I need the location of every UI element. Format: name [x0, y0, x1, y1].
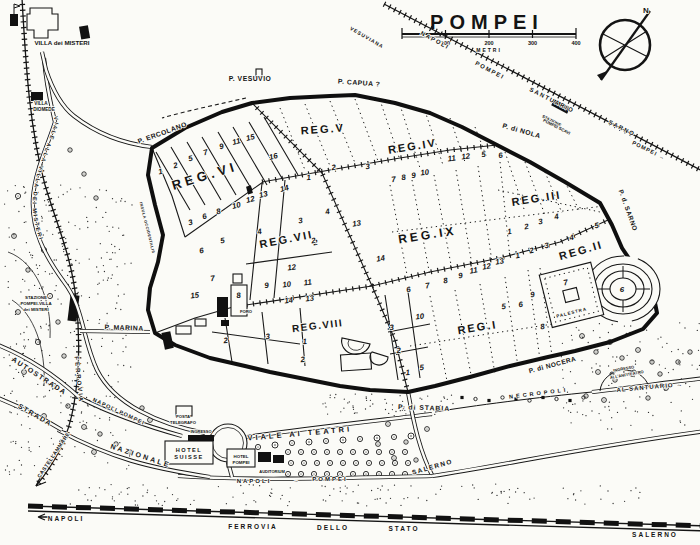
stipple-dot: [142, 484, 143, 485]
stipple-dot: [325, 500, 326, 501]
tree-icon-dot: [308, 441, 309, 442]
tree-icon-dot: [410, 435, 411, 436]
stipple-dot: [681, 410, 682, 411]
stipple-dot: [7, 190, 8, 191]
stipple-dot: [692, 399, 693, 400]
stipple-dot: [345, 485, 346, 486]
stipple-dot: [615, 360, 616, 361]
stipple-dot: [41, 220, 42, 221]
stipple-dot: [562, 378, 563, 379]
stipple-dot: [345, 493, 346, 494]
villa-diomede-building: [31, 92, 43, 101]
monuments-layer: [161, 69, 660, 371]
stipple-dot: [671, 351, 672, 352]
stipple-dot: [590, 401, 591, 402]
tree-icon-dot: [313, 473, 314, 474]
scale-unit-label: METRI: [476, 47, 502, 53]
insula-number-8: 8: [401, 173, 407, 183]
stipple-dot: [79, 262, 80, 263]
stipple-dot: [392, 409, 393, 410]
stipple-dot: [374, 499, 375, 500]
stipple-dot: [226, 503, 227, 504]
road-label-strada: STRADA: [17, 402, 54, 427]
viale-alla-villa-textpath: VIALE ALLA VILLA DEI MISTERI: [32, 116, 60, 242]
stipple-dot: [29, 428, 30, 429]
stipple-dot: [31, 257, 32, 258]
insula-number-12: 12: [482, 261, 493, 271]
stipple-dot: [67, 191, 68, 192]
stipple-dot: [124, 201, 125, 202]
stipple-dot: [678, 361, 679, 362]
tree-icon-dot: [391, 473, 392, 474]
tree-icon-dot: [378, 473, 379, 474]
insula-number-16: 16: [268, 151, 279, 162]
stipple-dot: [68, 222, 69, 223]
stipple-dot: [329, 495, 330, 496]
stipple-dot: [370, 400, 371, 401]
stipple-dot: [407, 497, 408, 498]
stipple-dot: [679, 420, 680, 421]
stipple-dot: [61, 303, 62, 304]
stipple-dot: [517, 488, 518, 489]
stipple-dot: [335, 394, 336, 395]
stipple-dot: [574, 383, 575, 384]
stipple-dot: [70, 332, 71, 333]
stipple-dot: [84, 452, 85, 453]
insula-number-10: 10: [420, 167, 430, 177]
stipple-dot: [440, 489, 441, 490]
pompei-map-svg: POMPEI 100 200 300 400 METRI N REG.VIREG…: [0, 0, 700, 545]
stipple-dot: [660, 337, 661, 338]
insula-number-13: 13: [258, 189, 269, 200]
stipple-dot: [366, 398, 367, 399]
stipple-dot: [611, 383, 612, 384]
stipple-dot: [43, 396, 44, 397]
stipple-dot: [342, 500, 343, 501]
stipple-dot: [13, 441, 14, 442]
stipple-dot: [158, 503, 159, 504]
insula-number-5: 5: [220, 236, 226, 246]
stipple-dot: [402, 401, 403, 402]
stipple-dot: [28, 441, 29, 442]
stipple-dot: [99, 319, 100, 320]
stipple-dot: [232, 496, 233, 497]
stipple-dot: [612, 503, 613, 504]
stipple-dot: [627, 355, 628, 356]
tree-icon-dot: [355, 462, 356, 463]
stipple-dot: [325, 406, 326, 407]
insula-number-14: 14: [279, 183, 290, 194]
stipple-dot: [346, 487, 347, 488]
stipple-dot: [591, 410, 592, 411]
insula-number-4: 4: [553, 212, 560, 222]
stipple-dot: [491, 493, 492, 494]
stipple-dot: [121, 198, 122, 199]
stipple-dot: [290, 487, 291, 488]
stipple-dot: [20, 333, 21, 334]
stipple-dot: [8, 287, 9, 288]
stipple-dot: [400, 410, 401, 411]
villa-diomede-label-2: DIOMEDE: [33, 107, 54, 112]
stipple-dot: [110, 432, 111, 433]
stipple-dot: [193, 500, 194, 501]
stipple-dot: [637, 411, 638, 412]
stipple-dot: [65, 347, 66, 348]
antiquarium-building: [161, 331, 173, 349]
stipple-dot: [103, 279, 104, 280]
stipple-dot: [612, 324, 613, 325]
insula-number-6: 6: [620, 285, 625, 294]
stipple-dot: [377, 488, 378, 489]
stipple-dot: [156, 500, 157, 501]
stipple-dot: [17, 413, 18, 414]
stipple-dot: [461, 486, 462, 487]
region-label-iii: REG.III: [511, 188, 562, 208]
stipple-dot: [665, 368, 666, 369]
stipple-dot: [325, 402, 326, 403]
stipple-dot: [365, 408, 366, 409]
stipple-dot: [592, 371, 593, 372]
tree-icon-dot: [637, 349, 638, 350]
insula-number-3: 3: [265, 332, 271, 341]
stipple-dot: [503, 491, 504, 492]
stipple-dot: [340, 491, 341, 492]
stipple-dot: [570, 412, 571, 413]
stipple-dot: [83, 371, 84, 372]
stipple-dot: [572, 404, 573, 405]
insula-number-5: 5: [187, 154, 194, 164]
stipple-dot: [81, 295, 82, 296]
stipple-dot: [20, 291, 21, 292]
stipple-dot: [111, 353, 112, 354]
stipple-dot: [172, 494, 173, 495]
stipple-dot: [94, 415, 95, 416]
tree-icon-dot: [17, 195, 18, 196]
stipple-dot: [99, 189, 100, 190]
stipple-dot: [648, 412, 649, 413]
stipple-dot: [657, 338, 658, 339]
stipple-dot: [403, 498, 404, 499]
stipple-dot: [384, 399, 385, 400]
stipple-dot: [24, 206, 25, 207]
pompei-excavations-map: POMPEI 100 200 300 400 METRI N REG.VIREG…: [0, 0, 700, 545]
railway-label-fs-3: STATO: [389, 525, 420, 532]
stipple-dot: [60, 184, 61, 185]
stipple-dot: [23, 376, 24, 377]
tree-icon-dot: [352, 451, 353, 452]
villa-diomede-label-1: VILLA: [34, 101, 48, 106]
stipple-dot: [94, 456, 95, 457]
stipple-dot: [353, 407, 354, 408]
stipple-dot: [14, 469, 15, 470]
tree-icon-dot: [365, 473, 366, 474]
stipple-dot: [36, 264, 37, 265]
stipple-dot: [142, 495, 143, 496]
stipple-dot: [25, 221, 26, 222]
stipple-dot: [329, 397, 330, 398]
stipple-dot: [630, 490, 631, 491]
stipple-dot: [327, 413, 328, 414]
hotel-suisse-label-2: SUISSE: [174, 454, 204, 460]
stipple-dot: [562, 343, 563, 344]
tree-icon-dot: [313, 451, 314, 452]
stipple-dot: [435, 494, 436, 495]
stipple-dot: [20, 474, 21, 475]
insula-number-2: 2: [527, 246, 535, 256]
road-label-napoli: NAPOLI: [237, 478, 272, 484]
stipple-dot: [120, 309, 121, 310]
stipple-dot: [112, 435, 113, 436]
stipple-dot: [679, 364, 680, 365]
stipple-dot: [576, 327, 577, 328]
stipple-dot: [651, 429, 652, 430]
stipple-dot: [684, 424, 685, 425]
stipple-dot: [162, 505, 163, 506]
marina-building-2: [195, 319, 206, 326]
stipple-dot: [57, 298, 58, 299]
stipple-dot: [12, 391, 13, 392]
stipple-dot: [639, 492, 640, 493]
tree-icon-dot: [596, 352, 597, 353]
stipple-dot: [114, 397, 115, 398]
stipple-dot: [176, 500, 177, 501]
stipple-dot: [106, 226, 107, 227]
insula-number-9: 9: [458, 271, 464, 281]
stipple-dot: [111, 278, 112, 279]
scale-tick-300: 300: [528, 40, 537, 46]
stipple-dot: [447, 399, 448, 400]
stipple-dot: [698, 350, 699, 351]
stipple-dot: [371, 394, 372, 395]
region-label-i: REG.I: [457, 318, 498, 336]
stipple-dot: [105, 212, 106, 213]
tree-icon-dot: [83, 426, 84, 427]
temple-building: [233, 274, 242, 283]
stipple-dot: [15, 314, 16, 315]
stipple-dot: [13, 234, 14, 235]
stipple-dot: [255, 501, 256, 502]
tree-icon-dot: [622, 358, 623, 359]
necropoli-tomb-mark: [487, 399, 490, 402]
stipple-dot: [405, 413, 406, 414]
stipple-dot: [567, 498, 568, 499]
stipple-dot: [109, 417, 110, 418]
stipple-dot: [126, 468, 127, 469]
stipple-dot: [581, 360, 582, 361]
stipple-dot: [697, 330, 698, 331]
stipple-dot: [666, 343, 667, 344]
stipple-dot: [5, 469, 6, 470]
compass-north-label: N: [643, 6, 649, 15]
stipple-dot: [340, 411, 341, 412]
stipple-dot: [280, 498, 281, 499]
insula-number-2: 2: [395, 346, 402, 355]
stipple-dot: [344, 399, 345, 400]
insula-number-1: 1: [306, 173, 311, 182]
necropoli-mark: [474, 397, 477, 400]
stipple-dot: [582, 400, 583, 401]
stipple-dot: [61, 456, 62, 457]
stipple-dot: [496, 495, 497, 496]
insula-number-12: 12: [461, 151, 471, 161]
stipple-dot: [127, 488, 128, 489]
stipple-dot: [243, 493, 244, 494]
tree-icon-dot: [37, 341, 38, 342]
stipple-dot: [599, 323, 600, 324]
stipple-dot: [29, 450, 30, 451]
insula-number-9: 9: [411, 171, 417, 181]
stipple-dot: [62, 246, 63, 247]
stipple-dot: [15, 311, 16, 312]
stipple-dot: [106, 190, 107, 191]
stipple-dot: [128, 487, 129, 488]
stipple-dot: [124, 263, 125, 264]
stipple-dot: [259, 485, 260, 486]
stipple-dot: [575, 499, 576, 500]
stipple-dot: [119, 249, 120, 250]
stipple-dot: [380, 489, 381, 490]
stipple-dot: [116, 302, 117, 303]
stipple-dot: [385, 502, 386, 503]
scale-tick-200: 200: [484, 40, 493, 46]
stipple-dot: [8, 303, 9, 304]
tree-icon-dot: [404, 473, 405, 474]
stipple-dot: [533, 497, 534, 498]
tree-icon-dot: [597, 371, 598, 372]
stipple-dot: [70, 188, 71, 189]
posta-label-1: POSTA: [176, 414, 190, 419]
marina-building-1: [176, 326, 191, 334]
stipple-dot: [582, 337, 583, 338]
street-via-stabiana: [252, 103, 408, 392]
scale-tick-400: 400: [571, 40, 580, 46]
stipple-dot: [40, 326, 41, 327]
stipple-dot: [147, 492, 148, 493]
stipple-dot: [25, 345, 26, 346]
stipple-dot: [77, 292, 78, 293]
stipple-dot: [49, 390, 50, 391]
stipple-dot: [45, 271, 46, 272]
stipple-dot: [108, 277, 109, 278]
stipple-dot: [353, 409, 354, 410]
foro-label: FORO: [240, 309, 253, 314]
stipple-dot: [609, 402, 610, 403]
stipple-dot: [577, 411, 578, 412]
insula-number-7: 7: [391, 175, 397, 185]
region-label-ii: REG.II: [558, 238, 605, 262]
stipple-dot: [651, 360, 652, 361]
tree-icon-dot: [378, 451, 379, 452]
stipple-dot: [122, 351, 123, 352]
stipple-dot: [623, 401, 624, 402]
insula-number-6: 6: [199, 246, 205, 256]
stipple-dot: [131, 204, 132, 205]
stipple-dot: [616, 356, 617, 357]
stipple-dot: [118, 227, 119, 228]
stipple-dot: [114, 500, 115, 501]
stipple-dot: [101, 257, 102, 258]
stipple-dot: [117, 364, 118, 365]
road-viale-alla-villa: [33, 58, 205, 433]
stipple-dot: [18, 211, 19, 212]
teatro-piccolo: [370, 352, 388, 365]
stipple-dot: [22, 353, 23, 354]
stipple-dot: [608, 332, 609, 333]
stipple-dot: [97, 293, 98, 294]
insula-number-6: 6: [498, 151, 504, 161]
stipple-dot: [115, 308, 116, 309]
stipple-dot: [563, 407, 564, 408]
tree-icon-dot: [17, 311, 18, 312]
stipple-dot: [103, 265, 104, 266]
stipple-dot: [112, 274, 113, 275]
stipple-dot: [117, 284, 118, 285]
insula-number-9: 9: [264, 281, 270, 291]
stipple-dot: [371, 490, 372, 491]
gate-label-sarno: P. d. SARNO: [618, 188, 640, 231]
stipple-dot: [39, 446, 40, 447]
stipple-dot: [625, 407, 626, 408]
stipple-dot: [25, 192, 26, 193]
stipple-dot: [86, 397, 87, 398]
insula-number-1: 1: [507, 227, 513, 237]
stipple-dot: [509, 489, 510, 490]
forum-area: [217, 274, 247, 326]
stipple-dot: [41, 216, 42, 217]
insula-number-7: 7: [425, 281, 431, 291]
stipple-dot: [23, 332, 24, 333]
tree-icon-dot: [603, 399, 604, 400]
railway-label-castellammare: CASTELLAMMARE: [36, 431, 71, 479]
stipple-dot: [96, 207, 97, 208]
stipple-dot: [106, 252, 107, 253]
insula-number-15: 15: [190, 290, 200, 300]
tree-icon-dot: [96, 198, 97, 199]
stipple-dot: [135, 500, 136, 501]
tree-icon-dot: [274, 444, 275, 445]
insula-number-1: 1: [514, 251, 520, 261]
stipple-dot: [34, 358, 35, 359]
stipple-dot: [325, 486, 326, 487]
stipple-dot: [529, 499, 530, 500]
stipple-dot: [67, 405, 68, 406]
stipple-dot: [109, 396, 110, 397]
stipple-dot: [8, 281, 9, 282]
stipple-dot: [96, 266, 97, 267]
stipple-dot: [40, 327, 41, 328]
insula-number-7: 7: [202, 148, 209, 158]
stipple-dot: [451, 395, 452, 396]
stipple-dot: [646, 330, 647, 331]
stipple-dot: [56, 259, 57, 260]
insula-number-2: 2: [171, 161, 179, 171]
stipple-dot: [444, 398, 445, 399]
stipple-dot: [104, 271, 105, 272]
necropoli-tomb-mark: [568, 399, 571, 402]
stipple-dot: [591, 367, 592, 368]
railway-label-sarno: SARNO: [607, 119, 636, 137]
stipple-dot: [5, 266, 6, 267]
stipple-dot: [426, 500, 427, 501]
insula-number-13: 13: [352, 218, 363, 228]
insula-number-12: 12: [245, 194, 256, 205]
road-label-pompei: POMPEI: [312, 476, 347, 482]
stipple-dot: [343, 408, 344, 409]
stipple-dot: [253, 484, 254, 485]
necropoli-mark: [501, 396, 504, 399]
stipple-dot: [60, 395, 61, 396]
stipple-dot: [51, 273, 52, 274]
